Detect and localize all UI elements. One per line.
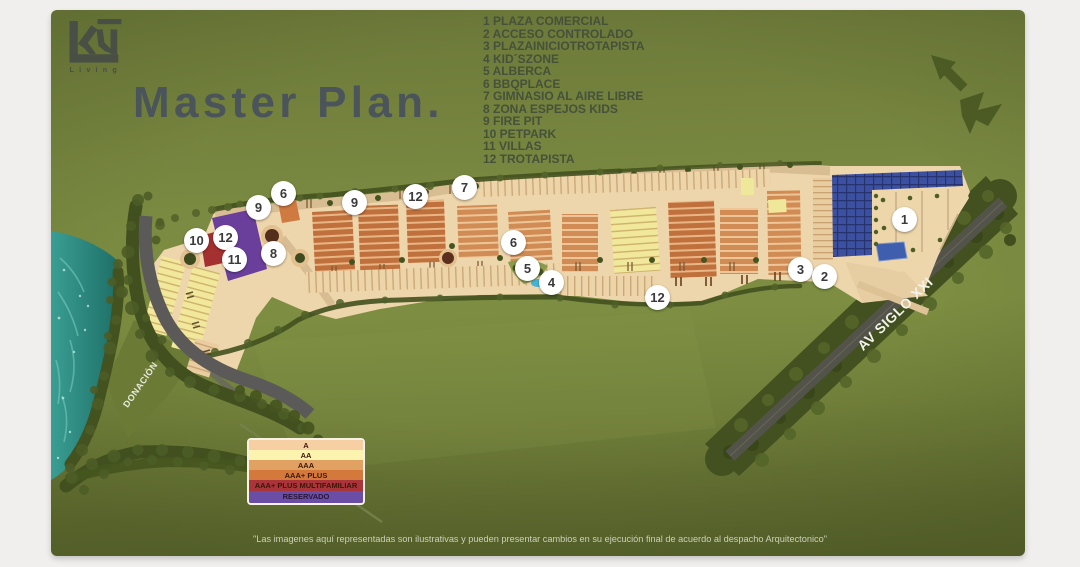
svg-text:Living: Living bbox=[70, 65, 122, 74]
